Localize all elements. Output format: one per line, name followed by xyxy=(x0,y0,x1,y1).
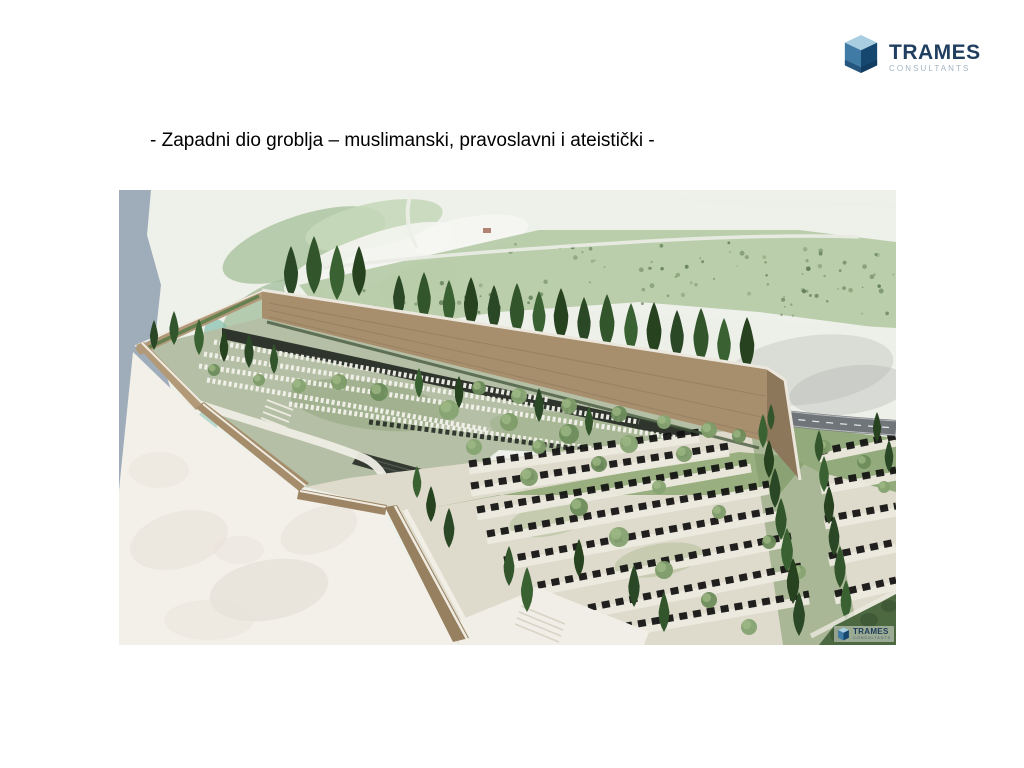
logo-cube-icon xyxy=(842,33,880,75)
company-logo: TRAMES CONSULTANTS xyxy=(842,33,981,75)
rendering-watermark: TRAMES CONSULTANTS xyxy=(834,626,894,642)
presentation-slide: TRAMES CONSULTANTS - Zapadni dio groblja… xyxy=(0,0,1024,768)
rendering-scene xyxy=(119,190,896,645)
logo-text: TRAMES CONSULTANTS xyxy=(889,42,981,73)
brand-name: TRAMES xyxy=(889,42,981,63)
small-house xyxy=(483,228,491,233)
watermark-cube-icon xyxy=(837,627,850,641)
slide-caption: - Zapadni dio groblja – muslimanski, pra… xyxy=(150,130,655,152)
cemetery-rendering: TRAMES CONSULTANTS xyxy=(119,190,896,645)
brand-subtitle: CONSULTANTS xyxy=(889,65,981,73)
watermark-subtitle: CONSULTANTS xyxy=(853,636,891,640)
